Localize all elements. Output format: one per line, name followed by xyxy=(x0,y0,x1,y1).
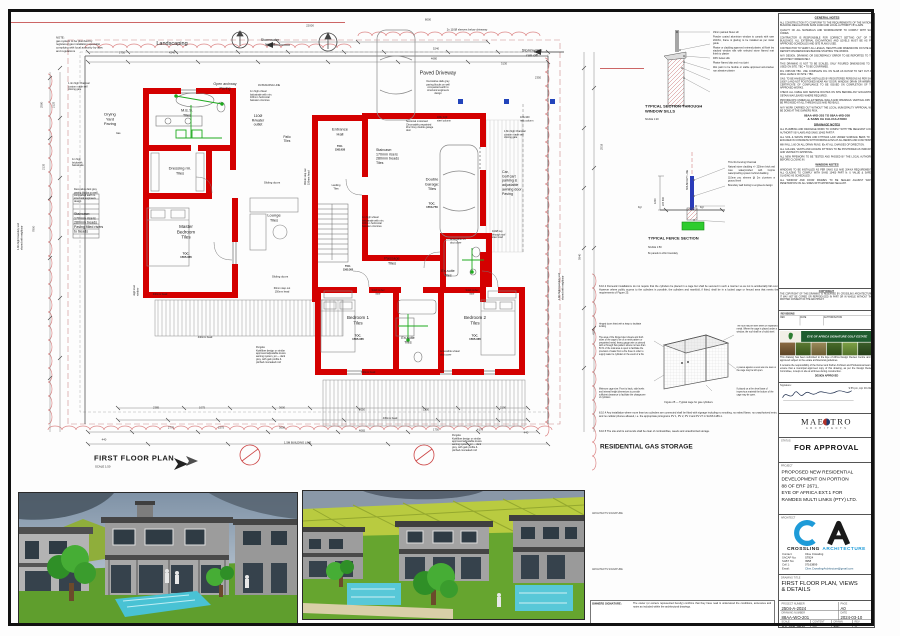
gas-storage-title: RESIDENTIAL GAS STORAGE xyxy=(600,443,722,451)
rev-value: 4 xyxy=(855,624,872,628)
dim: 440 xyxy=(83,438,125,441)
gas-point: Gas xyxy=(116,132,163,135)
note: ALL CONSTRUCTION TO CONFORM TO THE REQUI… xyxy=(780,21,874,27)
callout: Thru Ru Fencing Charcoal xyxy=(728,161,775,164)
step-out-rot: 30mm step out 150mm head xyxy=(304,139,310,186)
sleeves-note: 2x 110Ø sleeves below driveway xyxy=(446,28,488,31)
dim: 3600 xyxy=(261,406,303,409)
solid-timber-1: Solid timber door xyxy=(359,289,396,295)
dim: 3600 xyxy=(261,426,303,429)
entrance-toc: TOC. 1565.630 xyxy=(321,145,358,151)
maestro-sub: A R C H I T E C T S xyxy=(780,427,873,430)
building-line-1m: 1M BUILDING LINE xyxy=(258,84,305,87)
dim: 1750 xyxy=(415,428,457,431)
head-note-c: 440mm head xyxy=(349,371,386,374)
window-sill-title: TYPICAL SECTION THROUGH WINDOW SILLS xyxy=(645,104,720,114)
drawing-title-value: FIRST FLOOR PLAN, VIEWS & DETAILS xyxy=(780,580,873,593)
dim: 5240 xyxy=(415,47,457,50)
note: ALL GULLIES, VENTS AND ACCESS FITTINGS T… xyxy=(780,148,874,154)
duct-note-bottom: Accessible s/steel duct cover xyxy=(440,350,487,356)
landscaping-dim: 4240 xyxy=(151,51,193,54)
fgl-right: Fgl xyxy=(700,206,747,209)
dim: 1075 xyxy=(181,406,223,409)
room-garage: Double Garage: Tiles xyxy=(402,177,462,191)
staircase-center xyxy=(316,204,348,262)
room-mes: M.E.S. Tiles xyxy=(157,108,217,118)
solid-timber-2: Solid timber door xyxy=(453,289,490,295)
note: QUALITY OF ALL MATERIALS AND WORKMANSHIP… xyxy=(780,29,874,35)
room-bedroom1: Bedroom 1 Tiles xyxy=(324,315,391,326)
fence-scale: SCALE 1:50 xyxy=(648,246,695,249)
gate-note-18: 1.8m high Charcoal custom made self clos… xyxy=(504,130,551,139)
estate-logo-box xyxy=(780,331,801,342)
firm-name-2: ARCHITECTURE xyxy=(822,546,865,552)
dim: 2350 xyxy=(517,76,559,79)
date-value: 2024-03-10 xyxy=(841,615,872,620)
open-archway: Open archway Paving xyxy=(198,82,252,91)
note: CONTRACTOR IS RESPONSIBLE FOR CORRECT SE… xyxy=(780,36,874,45)
general-notes-title: GENERAL NOTES xyxy=(780,16,874,19)
note: MIN FALL 1:60 ON ALL DRAIN RUNS. IEs AT … xyxy=(780,143,874,146)
status-label: STATUS xyxy=(781,440,872,443)
estate-photo xyxy=(827,343,842,356)
head-note-b: 440mm head xyxy=(186,336,223,339)
estate-photo xyxy=(858,343,873,356)
drawing-number: 88AA-WO-201 xyxy=(782,615,838,620)
room-passage: Passage Tiles xyxy=(362,256,422,266)
gas-callout: Minimum cage size: Front to back, side l… xyxy=(599,388,647,399)
estate-photo xyxy=(796,343,811,356)
dim: 2775 xyxy=(150,426,192,429)
landing-label: Landing Tiles xyxy=(317,184,354,190)
render-house-right xyxy=(233,519,297,595)
room-master-bedroom: Master Bedroom Tiles xyxy=(152,224,219,240)
stormwater-left: Stormwater run off xyxy=(243,38,297,47)
window-notes-title: WINDOW NOTES xyxy=(780,163,874,166)
bedroom2-toc: TOC. 1565.365 xyxy=(454,334,496,341)
owners-signature-block: OWNERS SIGNATURE: The owner (or owners r… xyxy=(590,600,775,626)
render-people xyxy=(497,593,501,607)
fence-note: 8x panels to 22m boundary xyxy=(648,252,695,255)
gate-note-14: 1.4m high Charcoal custom made self clos… xyxy=(68,82,115,91)
render-pool xyxy=(347,583,401,605)
project-number: 2504-A-2024 xyxy=(782,606,838,611)
room-bedroom2: Bedroom 2 Tiles xyxy=(441,315,508,326)
fence-dim-225: 225 600 xyxy=(662,160,665,207)
head-note-445: 445mm head xyxy=(371,417,408,420)
estate-photo-strip xyxy=(780,343,873,356)
boundary-note-right: 1.8m high boundary wall shared with neig… xyxy=(558,254,564,301)
dim: 7800 xyxy=(32,180,35,233)
render-pool xyxy=(515,585,573,611)
africa-map-icon xyxy=(787,332,794,340)
dim: 22000 xyxy=(289,24,331,27)
scale-value: AS SHOWN xyxy=(782,624,810,628)
estate-banner: EYE OF AFRICA SIGNATURE GOLF ESTATE xyxy=(801,331,873,342)
note: PROVIDE DPC UNDER ALL EXTERNAL WALLS AND… xyxy=(780,98,874,104)
fence-callouts: Thru Ru Fencing Charcoal Natural stone c… xyxy=(727,160,775,232)
firm-name-1: CROSSLING xyxy=(787,546,820,552)
gas-callout: If placed on a firm level base of imperv… xyxy=(737,388,778,396)
status-panel: STATUS FOR APPROVAL xyxy=(778,437,875,464)
pergola-note-bottom: Pergola: Kwikfibre design or similar app… xyxy=(452,434,499,452)
dim: 2580 xyxy=(40,56,43,109)
gas-callout: The roof may be steel sheet or expanded … xyxy=(737,325,778,333)
building-line-15m: 1.5M BUILDING LINE xyxy=(284,441,337,444)
window-sill-scale: SCALE 1:20 xyxy=(645,118,692,121)
passage-toc: TOC. 1565.365 xyxy=(329,265,366,271)
meta-panel: PROJECT NUMBER2504-A-2024 PAGEA0 DRAWING… xyxy=(778,600,875,628)
gas-callout: The area of the hinged door sheets and b… xyxy=(599,336,647,356)
gas-p3: 8.10.5 The site and its surrounds shall … xyxy=(599,430,778,433)
dim: 3130 xyxy=(483,62,525,65)
view-4-render xyxy=(302,490,585,620)
brick-balustrade-note: 1m high brickwork balustrade xyxy=(72,158,119,167)
pergola-note-left: Pergola: Kwikfibre design or similar app… xyxy=(256,346,303,364)
note: GAS: TO BE HANDLED AND INSTALLED BY REGI… xyxy=(780,77,874,89)
dim: 2518 xyxy=(600,98,603,151)
column-note-1: 100x 100 steel column xyxy=(437,116,484,122)
garage-toc: TOC. 1553.750 xyxy=(411,202,453,209)
room-entrance-hall: Entrance Hall xyxy=(310,127,370,137)
estate-p1: This drawing has been submitted to the E… xyxy=(780,356,873,362)
room-lounge: Lounge Tiles xyxy=(244,213,304,223)
revisions-col-auth: AUTHORISATION xyxy=(824,316,873,326)
note: WINDOWS TO BE INSTALLED AS PER SANS 613 … xyxy=(780,168,874,177)
dim: 4170 xyxy=(459,428,501,431)
grid-markers xyxy=(240,445,434,465)
drawn-value: ME xyxy=(834,624,852,628)
rwater-outlet: 110Ø R/water outlet xyxy=(231,114,285,127)
estate-photo xyxy=(811,343,826,356)
paved-driveway: Paved Driveway xyxy=(400,70,476,76)
first-floor-plan-drawing xyxy=(28,12,628,482)
note: CONTRACTOR TO VERIFY ALL LEVELS, HEIGHTS… xyxy=(780,47,874,53)
carport-label: Car, Golf cart parking & adjustable awni… xyxy=(502,170,570,196)
column-note-2: 100x100 rsec column xyxy=(520,116,567,122)
copyright-panel: COPYRIGHT THE COPYRIGHT OF THIS DRAWING … xyxy=(778,288,875,312)
project-panel: PROJECT PROPOSED NEW RESIDENTIAL DEVELOP… xyxy=(778,462,875,516)
head-note-a: 440mm head xyxy=(141,293,178,296)
dim: 2135 xyxy=(42,118,45,171)
dim: 2190 xyxy=(482,406,524,409)
architect-panel: ARCHITECT CROSSLING ARCHITECTURE Contact… xyxy=(778,514,875,576)
owners-signature-title: OWNERS SIGNATURE: xyxy=(592,602,630,608)
dim: 1200 xyxy=(405,408,447,411)
view-3-render xyxy=(18,492,298,626)
dim: 4150 xyxy=(592,283,595,336)
gas-figure-caption: Figure 25 — Typical cage for gas cylinde… xyxy=(637,401,739,404)
step-out-note: 60mm step out 150mm head xyxy=(263,287,300,293)
window-sill-callouts: 15mm painted Nutec sill Powder coated al… xyxy=(712,30,774,104)
status-value: FOR APPROVAL xyxy=(780,444,873,453)
gas-p2: 8.10.4 Any installation where more than … xyxy=(599,411,778,417)
dim: 4680 xyxy=(413,57,455,60)
dim: 1750 xyxy=(101,51,143,54)
content-value: — xyxy=(813,624,831,628)
revisions-panel: REVISIONS REV DATE AUTHORISATION xyxy=(778,310,875,331)
svp-note: 110Ø svp through roof steel cowl xyxy=(492,230,539,239)
maestro-panel: MAESTRO A R C H I T E C T S xyxy=(778,413,875,439)
revisions-col-date: DATE xyxy=(800,316,823,326)
staircase-left-label: Staircase: 170mm risers 280mm treads Pav… xyxy=(74,212,142,234)
revisions-col-rev: REV xyxy=(780,316,800,326)
note: FFL 1565.630 TBC. USE COMPLETE FFL ON SL… xyxy=(780,70,874,76)
callout: Powder coated aluminium window to comply… xyxy=(713,36,774,45)
gas-p1: 8.10.2 Domestic installations do not req… xyxy=(599,285,778,295)
landscaping-label: Landscaping xyxy=(131,40,214,47)
gas-cage-figure xyxy=(652,315,737,393)
room-ensuite-mid: En-suite Tiles xyxy=(381,336,435,345)
design-approved-label: DESIGN APPROVED xyxy=(780,374,873,377)
boundary-note-left: 1.8m high boundary wall shared with neig… xyxy=(17,204,23,251)
architects-signature-label-2: ARCHITECTS SIGNATURE xyxy=(592,568,639,571)
estate-p2: It remains the responsibility of the Own… xyxy=(780,364,873,373)
note: ALL WINDOW AND DOOR FRAMES TO BE SEALED … xyxy=(780,179,874,185)
callout: Boundary wall footing to engineers desig… xyxy=(728,184,775,187)
callout: DPC below sills xyxy=(713,57,774,60)
dim: 5940 xyxy=(578,208,581,261)
steel-columns xyxy=(458,99,555,104)
callout: Plaster flamed drip and v-cut joint xyxy=(713,61,774,64)
page-value: A0 xyxy=(841,606,872,611)
dim: 1575 xyxy=(200,426,242,429)
sliding-doors-2: Sliding doors xyxy=(259,275,301,278)
boundary-line-label: BOUNDARY LINE xyxy=(686,144,689,191)
sliding-doors-1: Sliding doors xyxy=(251,181,293,184)
estate-photo xyxy=(843,343,858,356)
callout: Natural stone cladding +/- 220mm brick w… xyxy=(728,166,775,175)
maestro-logo-icon xyxy=(823,418,831,426)
staircase-center-label: Staircase: 170mm risers 280mm treads Til… xyxy=(376,148,444,165)
dim: 2125 xyxy=(52,56,55,109)
note: ALL SOIL & WASTE PIPES AND FITTINGS LAID… xyxy=(780,136,874,142)
note: ANY WORK CARRIED OUT WITHOUT THE LOCAL M… xyxy=(780,106,874,112)
note: ALL NEW PIPEWORK TO BE TESTED AND PASSED… xyxy=(780,155,874,161)
bedroom1-toc: TOC. 1565.365 xyxy=(337,334,379,341)
plan-scale: SCALE 1:50 xyxy=(95,465,148,468)
gas-callout: If placed against a solid wall the back … xyxy=(737,367,778,373)
room-dressing: Dressing rm. Tiles xyxy=(150,166,210,176)
estate-approval-panel: EYE OF AFRICA SIGNATURE GOLF ESTATE This… xyxy=(778,329,875,384)
dim: 2385 xyxy=(135,406,177,409)
copyright-text: THE COPYRIGHT OF THIS DRAWING IS RESERVE… xyxy=(780,293,873,301)
fence-detail-drawing xyxy=(630,148,735,236)
contact-value: Clive.CrosslingArchitecture@gmail.com xyxy=(805,567,853,571)
drawing-ref-line: 88AA-WO-203 TO 88AA-WD-208 & SANS XA CAL… xyxy=(780,114,874,121)
fgl-left: Fgl xyxy=(638,206,685,209)
room-drying-yard: Drying Yard Paving xyxy=(80,112,140,126)
dim: 2050 xyxy=(341,408,383,411)
callout: Plaster or cladding approved external pl… xyxy=(713,46,774,55)
duct-note-top: Accessible s/s duct cover xyxy=(450,238,497,244)
ca-logo xyxy=(784,520,869,546)
owners-signature-text: The owner (or owners represented hereby)… xyxy=(633,602,771,608)
architects-signature-label-1: ARCHITECTS SIGNATURE xyxy=(592,512,639,515)
callout: Wet paint to be flexible or stable appro… xyxy=(713,66,774,72)
dim: 440 xyxy=(505,431,547,434)
estate-photo xyxy=(780,343,795,356)
fence-title: TYPICAL FENCE SECTION xyxy=(648,236,723,241)
callout: 110mm pvc sleeves @ 2m c/centres at grou… xyxy=(728,176,775,182)
stormwater-right: Stormwater run off xyxy=(502,48,562,58)
paving-spec-left: Decorative dark grey paving blocks on we… xyxy=(74,188,121,203)
fence-dim-1200: 1200 xyxy=(654,158,657,205)
drainage-notes-title: DRAINAGE NOTES xyxy=(780,123,874,126)
master-toc: TOC. 1565.365 xyxy=(165,252,207,259)
signature-panel: Signature: 9:55 pm, Apr 03 2024 xyxy=(778,382,875,415)
signature-scribble xyxy=(780,387,857,402)
note: CHECK ALL CABLE AND SERVICE ROUTES ON SI… xyxy=(780,91,874,97)
dim: 8000 xyxy=(407,18,449,21)
plan-title: FIRST FLOOR PLAN xyxy=(94,454,235,463)
general-notes-panel: GENERAL NOTES ALL CONSTRUCTION TO CONFOR… xyxy=(778,13,875,290)
note: ANY DESIGN, DRAWING OR DISCREPANCY ERROR… xyxy=(780,54,874,60)
gas-callout: Hinged doors fitted with a hasp to facil… xyxy=(599,323,647,329)
room-ensuite-top: En-suite Tiles xyxy=(421,269,475,278)
note: THIS DRAWING IS NOT TO BE SCALED; ONLY F… xyxy=(780,62,874,68)
balustrade-note-top: 1m high c/steel balustrade with min. 100… xyxy=(250,90,297,102)
note: ALL PLUMBING AND DRAINAGE WORK TO COMPLY… xyxy=(780,128,874,134)
project-description: PROPOSED NEW RESIDENTIAL DEVELOPMENT ON … xyxy=(780,468,873,504)
callout: 15mm painted Nutec sill xyxy=(713,31,774,34)
dim: 4065 xyxy=(341,429,383,432)
drawing-title-panel: DRAWING TITLE FIRST FLOOR PLAN, VIEWS & … xyxy=(778,574,875,602)
balustrade-note-stair: 1m high s/steel balustrade with min. 100… xyxy=(362,216,409,228)
highlevel-window: High level window xyxy=(133,250,139,297)
contact-label: Email: xyxy=(782,567,805,571)
paving-spec: Decorative dark grey paving blocks on we… xyxy=(419,80,456,95)
